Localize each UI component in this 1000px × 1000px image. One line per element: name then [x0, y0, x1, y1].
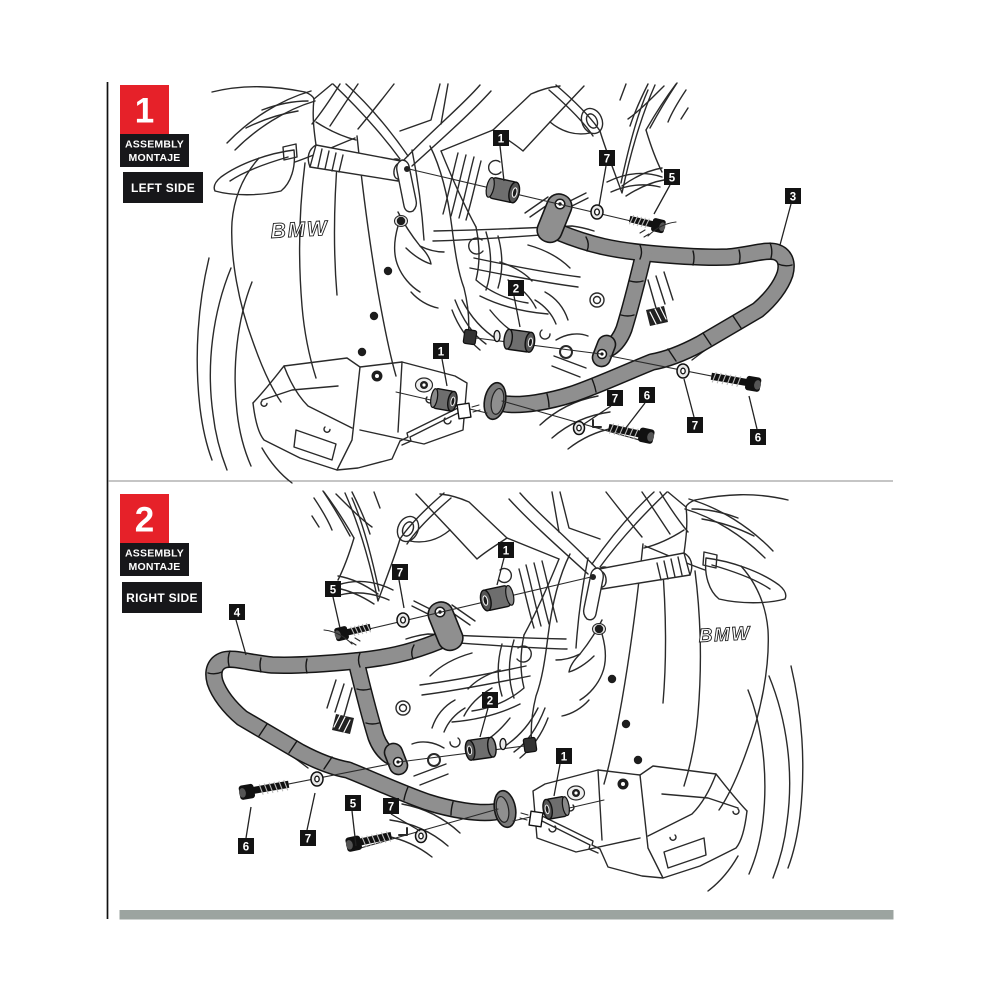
svg-text:1: 1 — [135, 92, 154, 131]
svg-text:RIGHT SIDE: RIGHT SIDE — [126, 591, 198, 605]
svg-text:1: 1 — [438, 347, 445, 359]
svg-text:MONTAJE: MONTAJE — [129, 152, 181, 164]
svg-text:7: 7 — [604, 154, 610, 166]
svg-text:1: 1 — [503, 546, 510, 558]
svg-text:BMW: BMW — [270, 217, 329, 243]
svg-text:2: 2 — [513, 284, 519, 296]
svg-text:1: 1 — [498, 134, 505, 146]
svg-text:BMW: BMW — [698, 623, 752, 647]
svg-text:3: 3 — [790, 192, 796, 204]
svg-text:2: 2 — [487, 696, 493, 708]
svg-text:7: 7 — [305, 834, 311, 846]
svg-text:5: 5 — [669, 173, 676, 185]
svg-text:1: 1 — [561, 752, 568, 764]
svg-text:MONTAJE: MONTAJE — [129, 561, 181, 573]
svg-text:ASSEMBLY: ASSEMBLY — [125, 548, 184, 560]
svg-text:7: 7 — [397, 568, 403, 580]
svg-text:6: 6 — [644, 391, 650, 403]
svg-text:5: 5 — [350, 799, 357, 811]
svg-text:2: 2 — [135, 501, 154, 540]
svg-text:LEFT SIDE: LEFT SIDE — [131, 181, 195, 195]
svg-text:5: 5 — [330, 585, 337, 597]
svg-text:7: 7 — [612, 394, 618, 406]
svg-text:6: 6 — [755, 433, 761, 445]
svg-text:4: 4 — [234, 608, 241, 620]
svg-text:ASSEMBLY: ASSEMBLY — [125, 139, 184, 151]
svg-text:6: 6 — [243, 842, 249, 854]
svg-text:7: 7 — [692, 421, 698, 433]
svg-text:7: 7 — [388, 802, 394, 814]
